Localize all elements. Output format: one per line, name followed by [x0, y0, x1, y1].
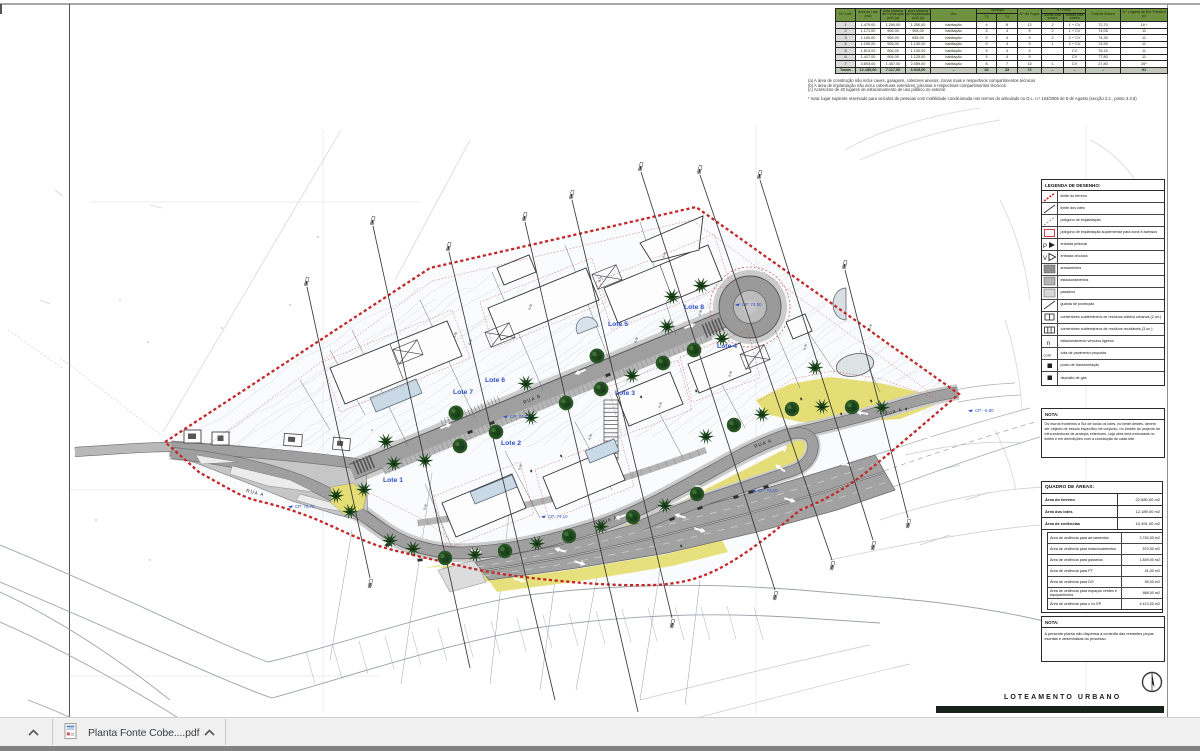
svg-text:CP: 74,75: CP: 74,75: [510, 414, 530, 419]
svg-text:CP: 74,10: CP: 74,10: [548, 514, 568, 519]
svg-text:Lote 7: Lote 7: [453, 389, 473, 396]
svg-text:6,00: 6,00: [867, 323, 873, 330]
svg-text:com: com: [1044, 352, 1052, 357]
svg-text:Lote 4: Lote 4: [717, 343, 737, 350]
svg-text:Lote 6: Lote 6: [485, 377, 505, 384]
svg-text:n: n: [1047, 340, 1051, 347]
svg-text:Lote 8: Lote 8: [684, 304, 704, 311]
svg-text:V: V: [1043, 256, 1047, 262]
svg-text:CP: 73,10: CP: 73,10: [758, 488, 778, 493]
svg-text:CP: -6,80: CP: -6,80: [975, 408, 994, 413]
svg-text:Lote 5: Lote 5: [608, 321, 628, 328]
svg-text:Lote 1: Lote 1: [383, 477, 403, 484]
svg-text:Lote 3: Lote 3: [615, 390, 635, 397]
svg-text:P: P: [1043, 244, 1047, 250]
svg-text:CP: 74,50: CP: 74,50: [742, 302, 762, 307]
svg-text:Lote 2: Lote 2: [501, 440, 521, 447]
svg-text:CP: 76,75: CP: 76,75: [295, 504, 315, 509]
